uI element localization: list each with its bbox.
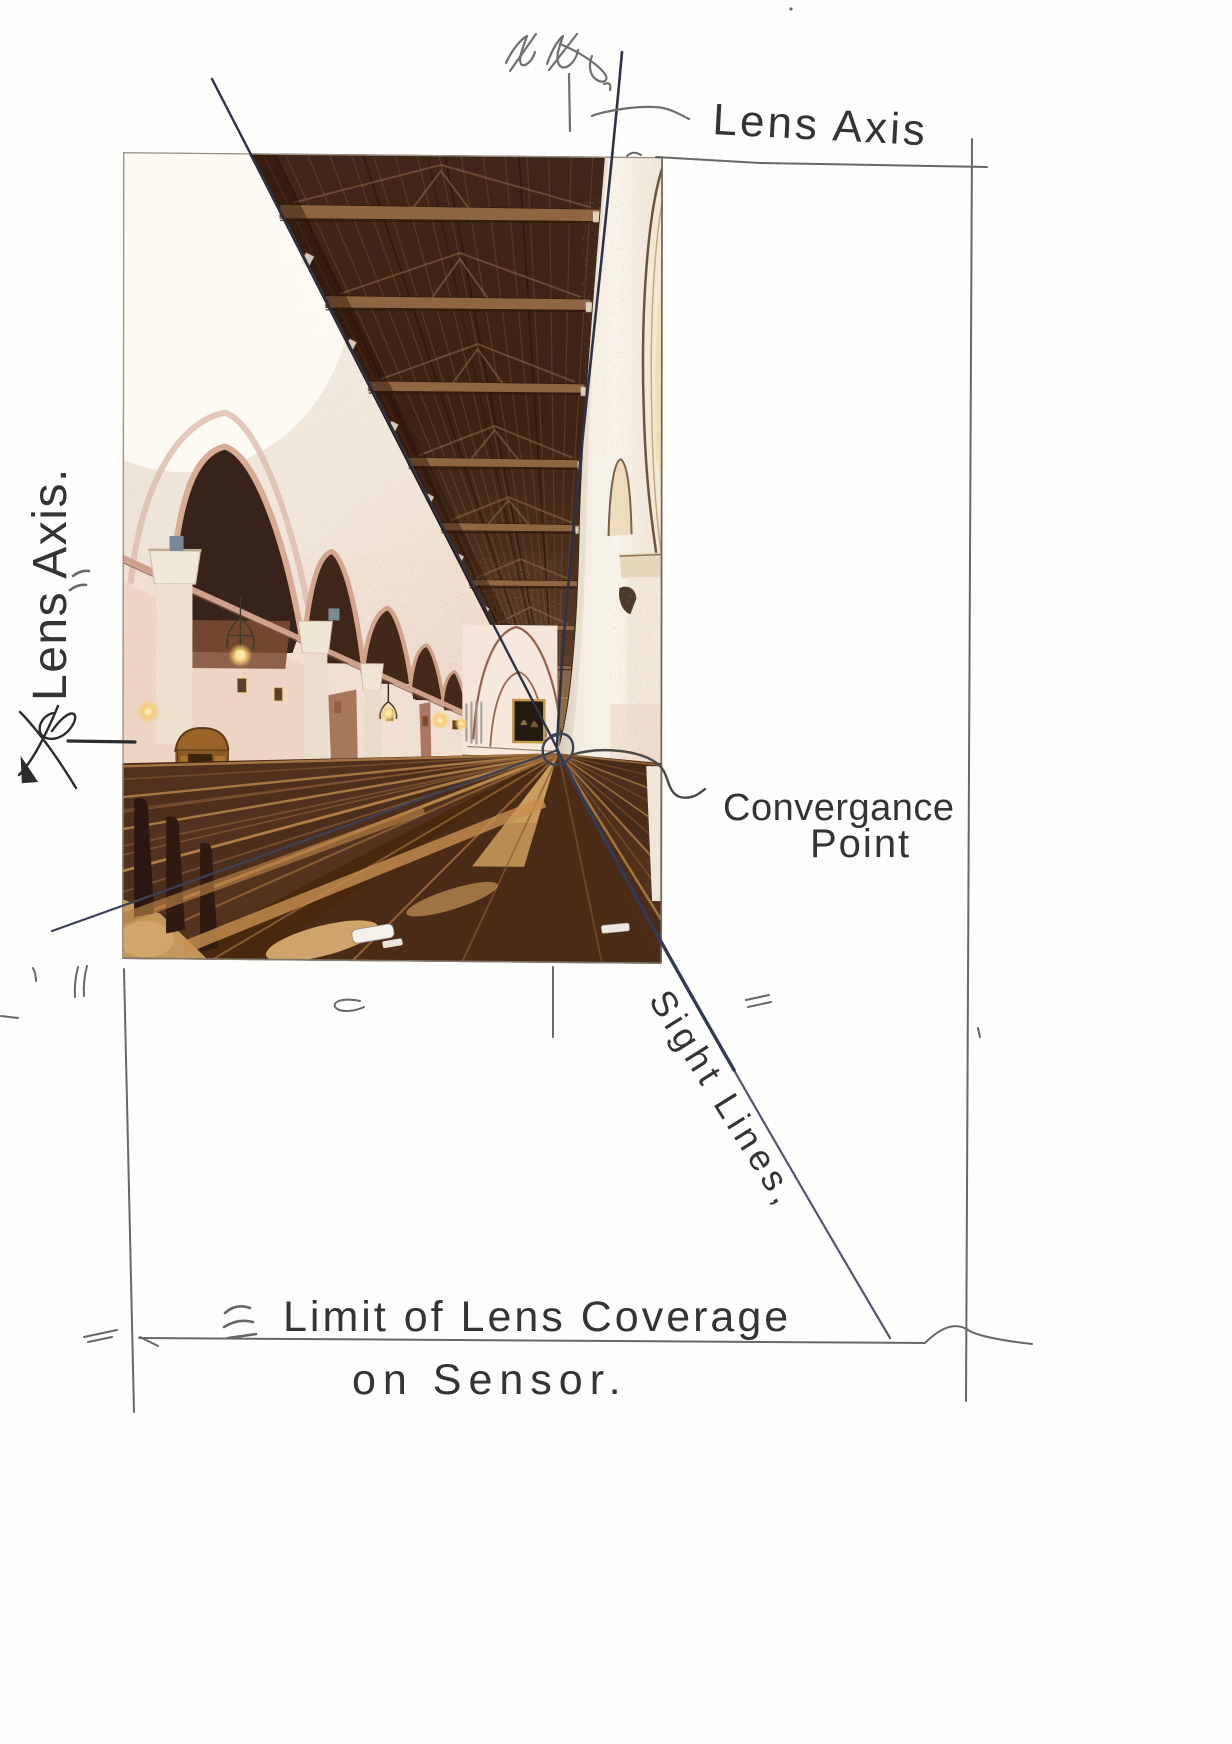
svg-text:Limit of Lens Coverage: Limit of Lens Coverage	[283, 1293, 791, 1341]
svg-text:Point: Point	[810, 822, 911, 866]
svg-text:Lens Axis.: Lens Axis.	[24, 467, 77, 701]
svg-text:on Sensor.: on Sensor.	[352, 1356, 628, 1404]
